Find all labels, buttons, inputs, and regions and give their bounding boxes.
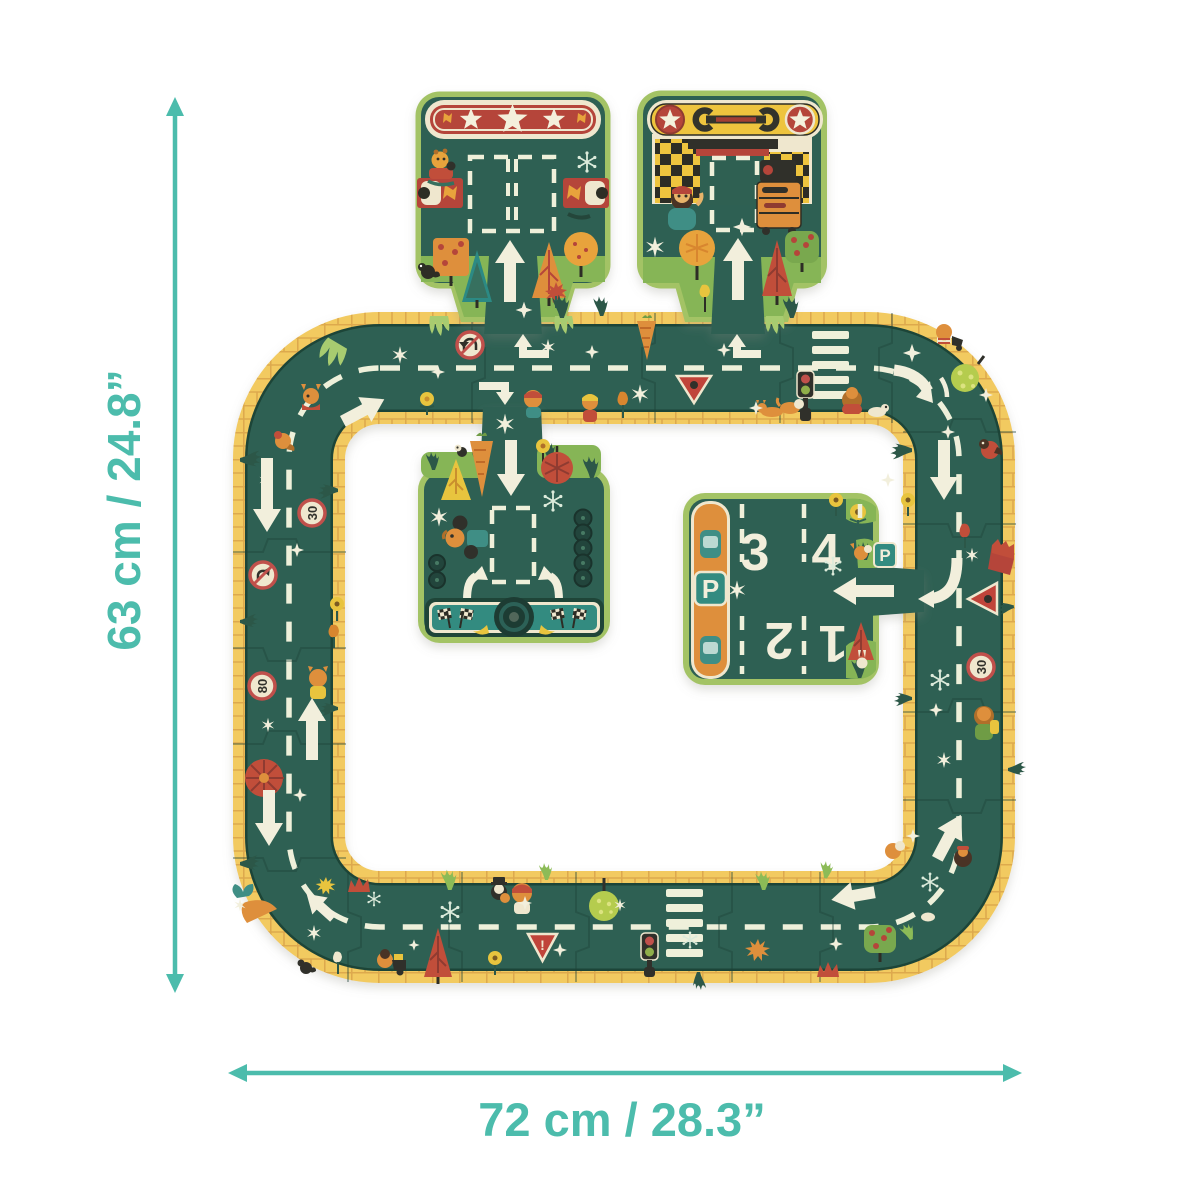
svg-text:30: 30 — [305, 506, 320, 520]
svg-text:P: P — [879, 546, 890, 565]
svg-text:30: 30 — [974, 660, 989, 674]
svg-text:2: 2 — [765, 611, 794, 669]
svg-text:72 cm / 28.3”: 72 cm / 28.3” — [478, 1093, 765, 1146]
svg-text:P: P — [702, 574, 719, 604]
svg-text:3: 3 — [741, 524, 770, 582]
svg-text:4: 4 — [812, 524, 841, 582]
svg-text:1: 1 — [819, 614, 848, 672]
svg-text:63 cm / 24.8”: 63 cm / 24.8” — [98, 369, 150, 650]
svg-text:80: 80 — [255, 679, 270, 693]
svg-text:!: ! — [540, 937, 545, 953]
